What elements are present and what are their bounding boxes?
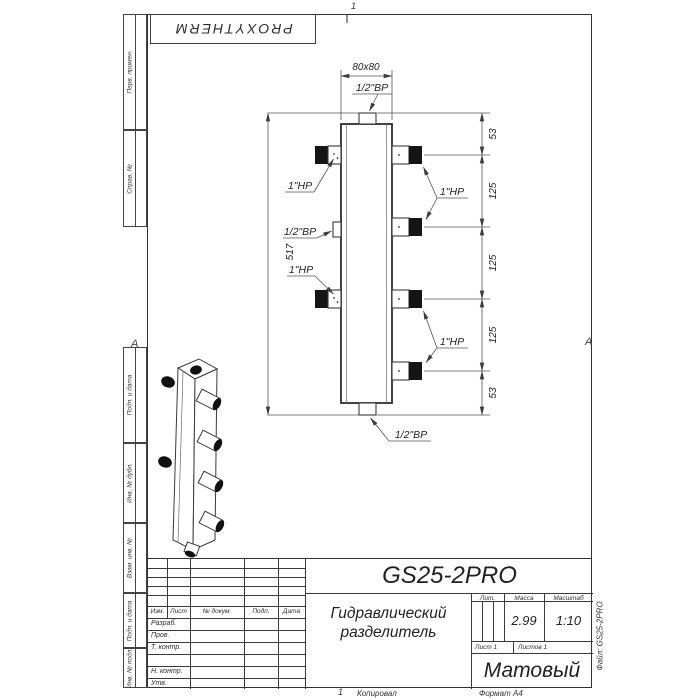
grid-line [148,654,305,655]
mass-value: 2.99 [504,613,544,628]
chain-text-1: 53 [488,128,499,140]
row-tkontr: Т. контр. [151,644,181,651]
dim-517-text: 517 [285,243,296,260]
grid-line [493,601,494,641]
col-izm: Изм. [148,608,167,615]
grid-line [148,642,305,643]
iso-left-port-1 [160,374,177,389]
grid-line [148,586,305,587]
designation: GS25-2PRO [306,559,593,593]
grid-line [244,559,245,689]
mass-label: Масса [504,595,544,602]
sheet-number: Лист 1 [475,644,497,651]
part-name-line2: разделитель [341,623,437,642]
grid-line [148,630,305,631]
grid-line [148,568,305,569]
grid-line [148,666,305,667]
label-left-mid-port: 1/2"ВР [284,226,316,238]
label-top-port: 1/2"ВР [356,82,388,94]
grid-line [471,641,593,642]
row-razrab: Разраб. [151,620,176,627]
grid-line [190,559,191,689]
part-name: Гидравлический разделитель [306,593,471,653]
row-nkontr: Н. контр. [151,668,183,675]
grid-line [278,559,279,689]
grid-line [482,601,483,641]
dim-80x80: 80x80 [341,62,392,76]
col-data: Дата [278,608,305,615]
col-list: Лист [167,608,190,615]
label-left-top-port: 1"НР [288,180,312,192]
col-docnum: № докум. [190,608,244,615]
port-right-1 [392,146,422,164]
scale-label: Масштаб [544,595,593,602]
grid-line [148,618,305,619]
grid-line [148,606,305,607]
label-bottom-port: 1/2"ВР [395,429,427,441]
row-utv: Утв. [151,680,167,687]
chain-text-3: 125 [488,254,499,271]
port-left-bottom [315,290,341,308]
iso-view [157,359,226,559]
label-left-bottom-port: 1"НР [289,264,313,276]
front-view [315,113,422,415]
grid-line [148,678,305,679]
title-block: Изм. Лист № докум. Подп. Дата Разраб. Пр… [147,558,592,688]
chain-text-2: 125 [488,182,499,199]
dim-chain: 53 125 125 125 53 [482,113,499,415]
port-right-3 [392,290,422,308]
col-podp: Подп. [244,608,278,615]
sheets-total: Листов 1 [518,644,547,651]
grid-line [148,595,305,596]
row-prov: Пров. [151,632,169,639]
material-value: Матовый [471,653,593,689]
scale-value: 1:10 [544,613,593,628]
port-left-top [315,146,341,164]
part-name-line1: Гидравлический [331,604,447,623]
port-right-2 [392,218,422,236]
chain-text-4: 125 [488,326,499,343]
grid-line [148,577,305,578]
drawing-sheet: PROXYTHERM Перв. примен. Справ. № Подп. … [0,0,700,700]
port-right-4 [392,362,422,380]
iso-left-port-2 [157,454,174,469]
label-right-bottom-ports: 1"НР [440,336,464,348]
chain-text-5: 53 [488,387,499,399]
grid-line [513,641,514,653]
lit-label: Лит. [471,595,504,602]
port-left-mid [333,222,341,237]
label-right-top-ports: 1"НР [440,186,464,198]
dim-80x80-text: 80x80 [352,62,380,73]
